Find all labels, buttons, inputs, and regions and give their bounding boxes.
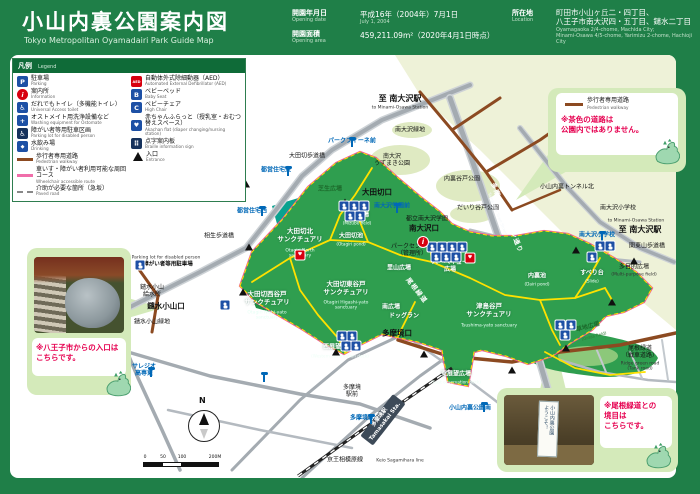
park-guide-map-page: 至 南大沢駅to Minami-Osawa Station南大沢緑地南大沢 うず… (0, 0, 700, 494)
ostomate-icon (17, 115, 28, 126)
opening-date-label: 開園年月日Opening date (292, 10, 327, 23)
scale-tick: 100 (178, 455, 187, 460)
info-icon (17, 89, 28, 100)
legend-item: だれでもトイレ（多機能トイレ）Universal Access toilet (17, 102, 127, 113)
legend-title: 凡例Legend (13, 59, 245, 73)
legend-label-en: Paved road (36, 192, 108, 196)
header: 小山内裏公園案内図 Tokyo Metropolitan Oyamadairi … (0, 0, 700, 55)
scale-tick: 50 (160, 455, 166, 460)
disabled-parking-icon (17, 128, 28, 139)
legend-label-en: Parking (31, 82, 49, 86)
legend-label-en: Parking lot for disabled person (31, 134, 95, 138)
legend-item: 赤ちゃんふらっと（授乳室・おむつ替えスペース）Akachan flat (dia… (131, 115, 241, 136)
line-dashed-icon (17, 191, 33, 193)
line-brown-icon (17, 158, 33, 161)
legend-box: 凡例Legend 駐車場Parking案内所Informationだれでもトイレ… (12, 58, 246, 202)
opening-date-value: 平成16年（2004年）7月1日July 1, 2004 (360, 10, 458, 26)
entrance-icon (133, 152, 143, 161)
page-title: 小山内裏公園案内図 (22, 6, 229, 36)
legend-label-jp: 赤ちゃんふらっと（授乳室・おむつ替えスペース） (145, 115, 241, 128)
legend-label-jp: 車いす・障がい者利用可能な周回コース (36, 167, 127, 180)
location-label: 所在地Location (512, 10, 533, 23)
callout-hachioji-entrance: ※八王子市からの入口は こちらです。 (27, 248, 131, 395)
legend-item: ベビーチェアHigh Chair (131, 102, 241, 113)
scale-tick: 200M (209, 455, 221, 460)
legend-item: 点字案内板Braille information sign (131, 138, 241, 149)
legend-item: ベビーベッドBaby Seat (131, 89, 241, 100)
akachan-flat-icon (131, 120, 142, 131)
legend-item: 車いす・障がい者利用可能な周回コースWheelchair accessible … (17, 167, 127, 184)
legend-label-en: Wheelchair accessible route (36, 180, 127, 184)
legend-label-en: Drinking (31, 147, 55, 151)
legend-label-en: Baby Seat (145, 95, 181, 99)
dinosaur-mascot-icon (641, 440, 671, 470)
scale-bar: 0 50 100 200M (143, 455, 219, 467)
dinosaur-mascot-icon (101, 368, 131, 398)
legend-item: 入口Entrance (131, 151, 241, 162)
legend-label-en: Automated External Defibrillator (AED) (145, 82, 226, 86)
location-value: 町田市小山ヶ丘二・四丁目、 八王子市南大沢四・五丁目、鑓水二丁目 Oyamaga… (556, 8, 700, 46)
legend-label-en: Pedestrian walkway (36, 160, 78, 164)
opening-area-value: 459,211.09m²（2020年4月1日時点） (360, 31, 494, 40)
legend-label-en: High Chair (145, 108, 181, 112)
drinking-icon (17, 141, 28, 152)
callout-walkway-note: 歩行者専用道路 Pedestrian walkway ※茶色の道路は 公園内では… (548, 88, 686, 172)
walkway-line-icon (565, 103, 583, 106)
page-subtitle: Tokyo Metropolitan Oyamadairi Park Guide… (24, 36, 214, 45)
baby-bed-icon (131, 89, 142, 100)
line-pink-icon (17, 174, 33, 177)
dinosaur-mascot-icon (650, 136, 680, 166)
braille-icon (131, 138, 142, 149)
legend-item: 自動体外式除細動器（AED）Automated External Defibri… (131, 76, 241, 87)
legend-left-column: 駐車場Parking案内所Informationだれでもトイレ（多機能トイレ）U… (17, 76, 127, 197)
legend-item: 駐車場Parking (17, 76, 127, 87)
scale-tick: 0 (144, 455, 147, 460)
legend-label-en: Entrance (146, 158, 165, 162)
opening-area-label: 開園面積Opening area (292, 31, 326, 44)
legend-label-en: Braille information sign (145, 145, 194, 149)
legend-label-en: Akachan flat (diaper changing/nursing st… (145, 128, 241, 137)
legend-label-en: Information (31, 95, 55, 99)
toilet-icon (17, 102, 28, 113)
legend-item: 障がい者等用駐車区画Parking lot for disabled perso… (17, 128, 127, 139)
legend-item: 歩行者専用道路Pedestrian walkway (17, 154, 127, 165)
boundary-sign-photo: ようこそ！ 小山内裏公園 (504, 395, 594, 465)
scale-bar-segments (143, 462, 219, 467)
baby-chair-icon (131, 102, 142, 113)
legend-label-en: Washing equipment for Ostomate (31, 121, 109, 125)
legend-item: 案内所Information (17, 89, 127, 100)
legend-label-en: Universal Access toilet (31, 108, 121, 112)
walkway-note-text: ※茶色の道路は 公園内ではありません。 (561, 115, 673, 135)
walkway-line-label-en: Pedestrian walkway (587, 105, 629, 110)
hachioji-note-text: ※八王子市からの入口は こちらです。 (36, 343, 122, 363)
entrance-photo (34, 257, 124, 333)
compass-needle-icon (199, 413, 209, 425)
aed-icon (131, 76, 142, 87)
compass-north-label: N (199, 396, 206, 405)
parking-icon (17, 76, 28, 87)
walkway-line-label: 歩行者専用道路 (587, 97, 629, 104)
compass-rose (188, 410, 220, 442)
legend-item: 介助が必要な箇所（急坂）Paved road (17, 186, 127, 197)
photo-welcome-sign: ようこそ！ 小山内裏公園 (537, 400, 559, 457)
legend-right-column: 自動体外式除細動器（AED）Automated External Defibri… (131, 76, 241, 197)
callout-onekido-boundary: ようこそ！ 小山内裏公園 ※尾根緑道との 境目は こちらです。 (497, 388, 678, 472)
legend-item: オストメイト用洗浄設備などWashing equipment for Ostom… (17, 115, 127, 126)
legend-item: 水飲み場Drinking (17, 141, 127, 152)
onekido-note-text: ※尾根緑道との 境目は こちらです。 (604, 401, 668, 431)
photo-rock (65, 278, 121, 328)
